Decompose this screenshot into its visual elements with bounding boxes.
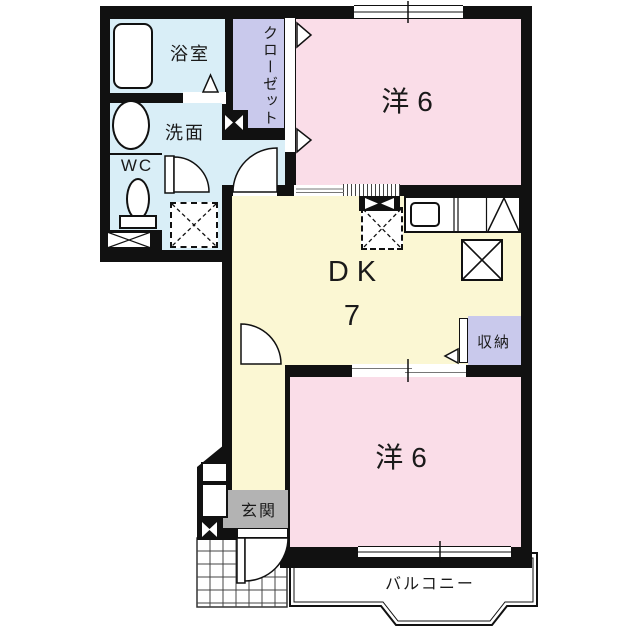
entrance-door-panel — [237, 538, 245, 583]
balcony-label: バルコニー — [360, 570, 500, 594]
storage-label: 収納 — [466, 331, 522, 352]
washroom-door-opening — [233, 185, 277, 196]
hallway — [232, 365, 285, 490]
shoe-cabinet-lower — [201, 483, 228, 518]
dk-label-text: DK — [306, 250, 406, 294]
wc-window — [107, 232, 151, 248]
room-washroom-east — [222, 140, 285, 185]
sliding-door-dk-bedroom — [352, 364, 466, 377]
entrance-label: 玄関 — [230, 497, 288, 521]
closet-door — [284, 17, 296, 153]
refrigerator-space — [361, 207, 403, 250]
closet-label: クローゼット — [234, 25, 280, 85]
kitchen-sink — [410, 202, 440, 227]
sliding-door-bedroom-top — [294, 185, 344, 196]
bedroom-bottom-label: 洋6 — [340, 436, 470, 476]
entrance-door-sill — [237, 528, 288, 538]
shoe-cabinet-upper — [201, 462, 228, 483]
window-bedroom-top — [354, 5, 463, 19]
bathroom-label: 浴室 — [160, 40, 220, 66]
toilet-tank-icon — [119, 215, 157, 229]
sink-icon — [112, 100, 150, 150]
wc-label: WC — [112, 156, 162, 176]
kitchen-vent-box — [359, 196, 400, 211]
washroom-label: 洗面 — [155, 119, 215, 145]
floor-plan: 浴室 クローゼット 洗面 WC 洋6 DK 7 収納 玄関 洋6 バルコニー — [0, 0, 640, 640]
porch-tile-grid-lines — [197, 538, 287, 607]
dk-label: DK 7 — [306, 250, 406, 338]
bathtub-icon — [113, 23, 153, 89]
dk-size-text: 7 — [306, 294, 406, 338]
bedroom-top-label: 洋6 — [346, 80, 476, 120]
porch-tiles — [197, 538, 287, 607]
toilet-bowl-icon — [126, 178, 150, 220]
window-bedroom-bottom — [358, 546, 511, 558]
washing-machine-area — [170, 202, 218, 248]
sliding-screen-bedroom-top — [343, 184, 400, 196]
appliance-x-box — [461, 239, 503, 281]
